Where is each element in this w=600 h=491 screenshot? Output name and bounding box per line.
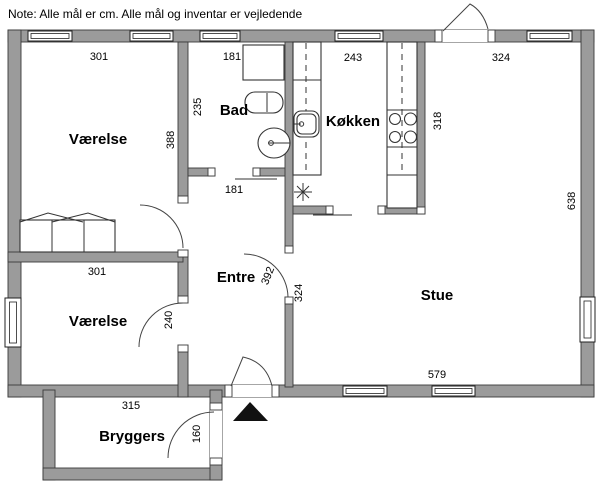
wall-between-vaerelser [8,252,183,262]
door-arc-vaerelse1 [140,205,183,248]
dim-stue-bottom-width: 579 [428,369,446,381]
door-jamb [285,246,293,253]
dim-stue-depth: 638 [566,192,578,210]
door-jamb [378,206,385,214]
room-label-vaerelse2: Værelse [69,313,127,330]
wall-bryggers-left [43,390,55,480]
window [335,31,383,41]
dim-bad-depth: 235 [192,98,204,116]
room-label-stue: Stue [421,287,454,304]
wall-bottom [8,385,594,397]
fixtures [20,42,417,421]
door-jamb [208,168,215,176]
room-label-koekken: Køkken [326,113,380,130]
note-text: Note: Alle mål er cm. Alle mål og invent… [8,7,302,21]
door-jamb [178,196,188,203]
wall-entre-stue-lower [285,297,293,387]
floor-plan: Note: Alle mål er cm. Alle mål og invent… [0,0,600,491]
entrance-arrow [233,402,268,421]
floor-drain-icon [294,183,312,201]
room-label-vaerelse1: Værelse [69,131,127,148]
room-label-entre: Entre [217,269,255,286]
door-jambs [178,30,495,465]
door-opening-entre-stue [285,253,293,297]
dim-vaerelse1-depth: 388 [165,131,177,149]
window [130,31,173,41]
door-jamb [178,296,188,303]
door-jamb [272,385,279,397]
dimension-labels: 301 181 243 324 181 301 579 315 235 388 … [88,51,578,443]
kitchen-counter-left [293,42,321,175]
door-arc-koekken-exterior [443,4,488,31]
door-jamb [253,168,260,176]
window [580,297,595,342]
window [5,298,21,347]
dim-stue-left-depth: 324 [293,284,305,302]
dim-koekken-width: 243 [344,52,362,64]
toilet [245,92,283,113]
wall-bryggers-bottom [43,468,222,480]
door-jamb [178,250,188,257]
window [527,31,572,41]
door-opening-front [232,385,272,397]
shower-cabinet [243,45,284,80]
door-jamb [178,345,188,352]
wall-vaerelse-entre-lower [178,345,188,397]
door-arc-vaerelse2 [139,303,183,347]
door-jamb [488,30,495,42]
door-opening-vaerelse2 [178,303,188,345]
dim-koekken-depth: 318 [432,112,444,130]
wardrobe [20,213,115,252]
dim-stue-width: 324 [492,52,510,64]
door-jamb [210,458,222,465]
dim-vaerelse2-width: 301 [88,266,106,278]
dim-bad-width: 181 [223,51,241,63]
door-jamb [225,385,232,397]
window [28,31,72,41]
door-jamb [417,207,425,214]
dim-entre-depth: 392 [259,265,277,287]
bathroom-sink [258,128,290,158]
dim-vaerelse2-depth: 240 [163,311,175,329]
door-opening-bryggers [210,410,222,458]
dim-bryggers-width: 315 [122,400,140,412]
door-jamb [326,206,333,214]
wall-koekken-stue [417,42,425,214]
dim-bryggers-door: 160 [191,425,203,443]
door-arc-front [231,357,272,386]
window [432,386,475,396]
kitchen-sink [294,111,319,137]
door-jamb [285,297,293,304]
door-opening-koekken-exterior [442,30,488,42]
door-jamb [210,403,222,410]
dim-vaerelse1-width: 301 [90,51,108,63]
wall-top [8,30,594,42]
room-label-bad: Bad [220,102,248,119]
wall-vaerelse-entre-upper [178,42,188,203]
dim-bad-door: 181 [225,184,243,196]
room-label-bryggers: Bryggers [99,428,165,445]
window [200,31,240,41]
door-jamb [435,30,442,42]
window [343,386,387,396]
